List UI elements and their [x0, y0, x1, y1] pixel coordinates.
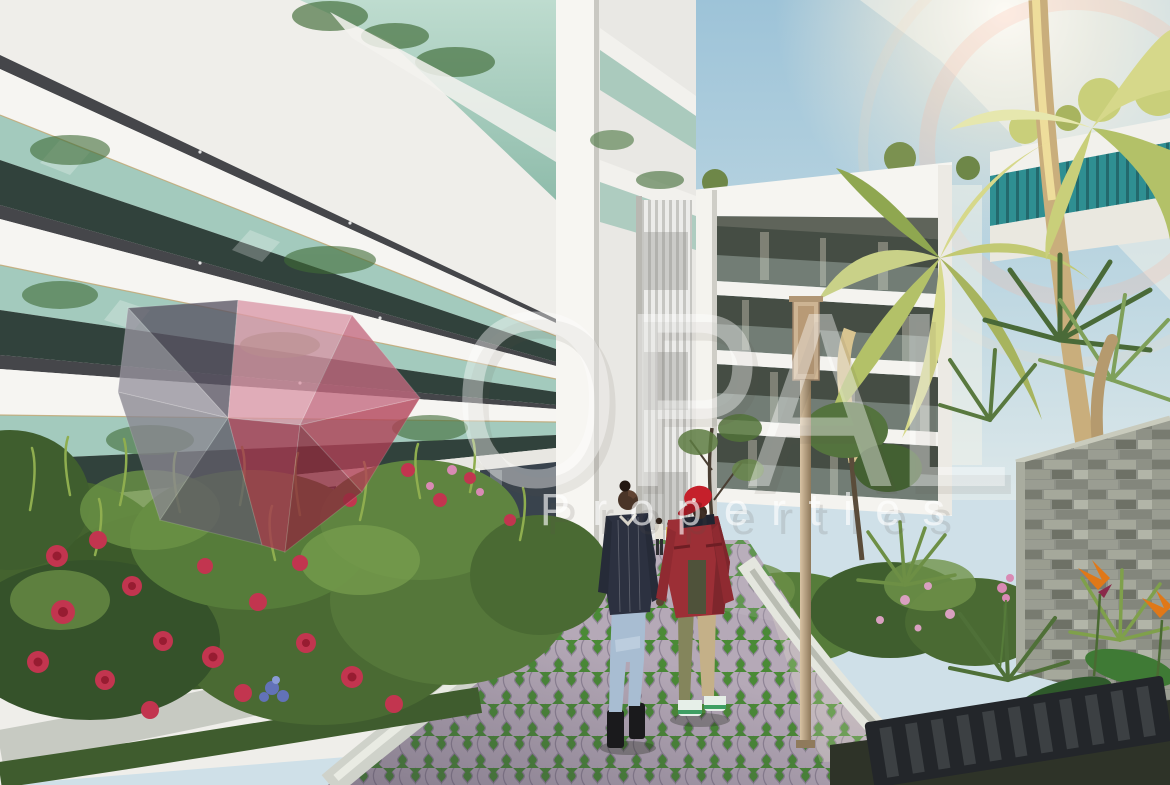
- boots: [607, 710, 624, 748]
- watermark: OPAL OPAL Properties Properties: [118, 260, 1018, 552]
- rendering-canvas: OPAL OPAL Properties Properties: [0, 0, 1170, 785]
- scene: OPAL OPAL Properties Properties: [0, 0, 1170, 785]
- subtitle-text: Properties: [540, 484, 945, 535]
- inner-shirt: [688, 560, 706, 614]
